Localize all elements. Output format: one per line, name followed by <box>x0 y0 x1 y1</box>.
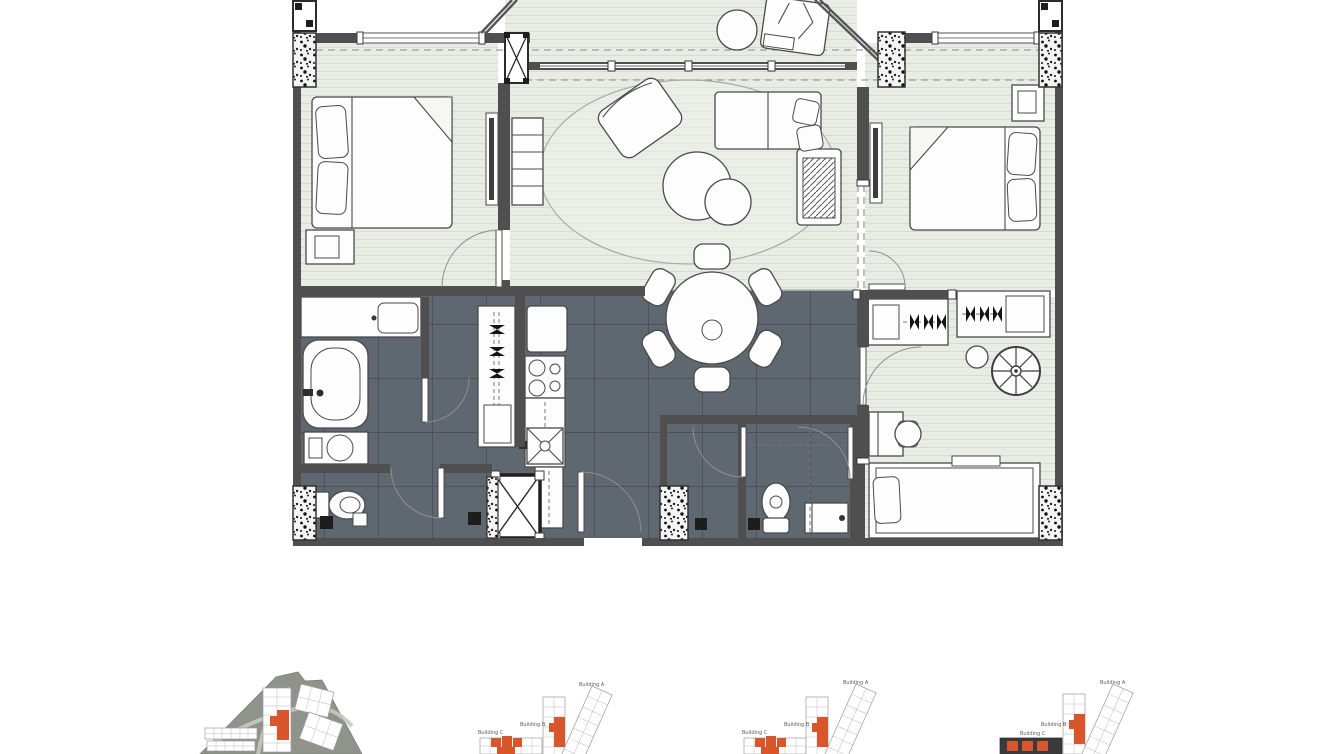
wall-bedroomL-living <box>498 83 510 230</box>
bathtub <box>303 340 368 428</box>
wall-wc-top-b <box>440 464 492 473</box>
siteplan-thumbnail[interactable] <box>200 672 362 754</box>
speckled-column <box>293 486 316 540</box>
side-table <box>966 346 988 368</box>
floor-drain <box>748 518 760 530</box>
open-partition-dashed <box>858 185 864 290</box>
pillow <box>1007 132 1038 176</box>
speckled-column <box>1039 486 1062 540</box>
throw-blanket <box>803 158 835 218</box>
wardrobe-1 <box>868 299 948 345</box>
building-c-label: Building C <box>1020 731 1046 737</box>
wall-bedroomR-dressing <box>857 290 955 299</box>
balcony-sliding-door <box>528 61 857 71</box>
bed-shelf <box>952 456 1000 466</box>
speckled-pier <box>487 477 498 538</box>
floor-drain <box>468 512 481 525</box>
window-bedroom-left <box>357 32 485 44</box>
wall-dining-dressing-b <box>857 405 869 463</box>
single-bed <box>869 456 1040 538</box>
balcony-lounge-chair <box>760 0 831 56</box>
stove <box>525 356 565 398</box>
media-console <box>512 118 543 205</box>
table-centerpiece <box>702 320 722 340</box>
pillow <box>315 105 349 159</box>
sofa-cushion <box>792 98 820 126</box>
building-b-label: Building B <box>1041 722 1067 728</box>
floor-thumbnail-1[interactable]: Building A Building B Building C <box>478 682 612 754</box>
building-b-label: Building B <box>520 722 546 728</box>
sofa-cushion <box>796 124 824 152</box>
floor-thumbnail-3[interactable]: Building A Building B Building C <box>1000 680 1133 754</box>
speckled-column <box>878 32 905 87</box>
wall-bathroom2-top <box>660 415 857 424</box>
wall-bathroom1 <box>421 297 429 378</box>
closet-drawer <box>484 405 511 443</box>
speckled-column <box>1039 33 1062 87</box>
x-brace-column <box>504 32 529 84</box>
floor-thumbnail-2[interactable]: Building A Building B Building C <box>742 680 876 754</box>
wall-fixture <box>353 513 367 526</box>
dining-table <box>666 272 758 364</box>
double-bed-right <box>910 127 1040 230</box>
building-b-label: Building B <box>784 722 810 728</box>
wall-bathroom2-left <box>660 424 667 486</box>
nightstand-right <box>1012 85 1044 121</box>
wall-living-bedroomR <box>857 87 869 182</box>
building-c-label: Building C <box>478 730 504 736</box>
wardrobe-2 <box>957 291 1050 337</box>
toilet-2 <box>762 483 790 533</box>
pillow <box>316 161 349 214</box>
speckled-column <box>293 33 316 87</box>
balcony-round-table <box>717 10 757 50</box>
washing-machine <box>304 432 368 464</box>
window-bedroom-right <box>932 32 1040 44</box>
speckled-column <box>660 486 688 540</box>
tv-screen <box>873 128 878 198</box>
corner-column-top-right <box>1039 1 1062 31</box>
building-a-label: Building A <box>579 682 605 688</box>
service-shaft <box>491 471 544 542</box>
floorplan-canvas: Building A Building B Building C Buildin… <box>0 0 1342 754</box>
corner-column-top-left <box>293 1 316 31</box>
wall-bedroomL-bathroom <box>301 286 443 296</box>
wall-living-kitchen <box>443 286 645 296</box>
wall-kitchen-spine <box>515 295 525 447</box>
double-bed-left <box>312 97 452 228</box>
fridge <box>527 306 567 352</box>
washbasin-2 <box>805 503 848 533</box>
wall-wc-top-a <box>301 464 390 473</box>
pillow <box>873 476 901 523</box>
ceiling-fan <box>992 347 1040 395</box>
building-a-label: Building A <box>1100 680 1126 686</box>
tub-faucet <box>317 390 324 397</box>
building-c-label: Building C <box>742 730 768 736</box>
vanity-counter <box>301 297 421 337</box>
floor-drain <box>695 518 707 530</box>
desk-chair <box>895 421 921 447</box>
pillow <box>1007 178 1037 221</box>
tv-unit-bedroom-left <box>486 113 498 205</box>
floor-drain <box>320 516 333 529</box>
highlight-units-c <box>1007 741 1048 751</box>
faucet <box>372 316 377 321</box>
unit-floor-plan <box>293 0 1063 546</box>
tall-wardrobe-closet <box>478 306 515 447</box>
nightstand-left <box>306 230 354 264</box>
building-a-label: Building A <box>843 680 869 686</box>
